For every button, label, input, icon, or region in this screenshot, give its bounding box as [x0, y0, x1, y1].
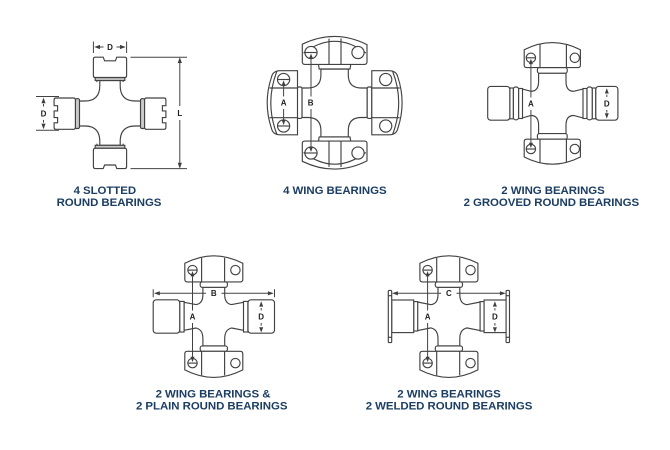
- svg-text:2 PLAIN ROUND BEARINGS: 2 PLAIN ROUND BEARINGS: [136, 400, 288, 412]
- svg-text:D: D: [107, 43, 113, 52]
- svg-text:B: B: [211, 289, 217, 298]
- svg-text:L: L: [177, 109, 182, 118]
- svg-text:2 GROOVED ROUND BEARINGS: 2 GROOVED ROUND BEARINGS: [464, 197, 640, 209]
- svg-text:4 SLOTTED: 4 SLOTTED: [74, 185, 136, 197]
- svg-text:A: A: [425, 313, 431, 322]
- svg-text:2 WING BEARINGS: 2 WING BEARINGS: [501, 185, 605, 197]
- svg-text:A: A: [190, 313, 196, 322]
- svg-text:D: D: [604, 99, 610, 108]
- svg-text:D: D: [258, 313, 264, 322]
- svg-text:2 WING BEARINGS: 2 WING BEARINGS: [397, 388, 501, 400]
- svg-text:D: D: [492, 313, 498, 322]
- svg-text:B: B: [308, 99, 314, 108]
- svg-text:2 WING BEARINGS &: 2 WING BEARINGS &: [156, 389, 271, 401]
- svg-text:A: A: [528, 99, 534, 108]
- svg-text:A: A: [281, 99, 287, 108]
- svg-text:C: C: [446, 289, 452, 298]
- svg-text:4 WING BEARINGS: 4 WING BEARINGS: [283, 185, 387, 197]
- svg-text:ROUND BEARINGS: ROUND BEARINGS: [57, 197, 162, 209]
- svg-text:D: D: [41, 109, 47, 118]
- svg-text:2 WELDED ROUND BEARINGS: 2 WELDED ROUND BEARINGS: [366, 401, 533, 413]
